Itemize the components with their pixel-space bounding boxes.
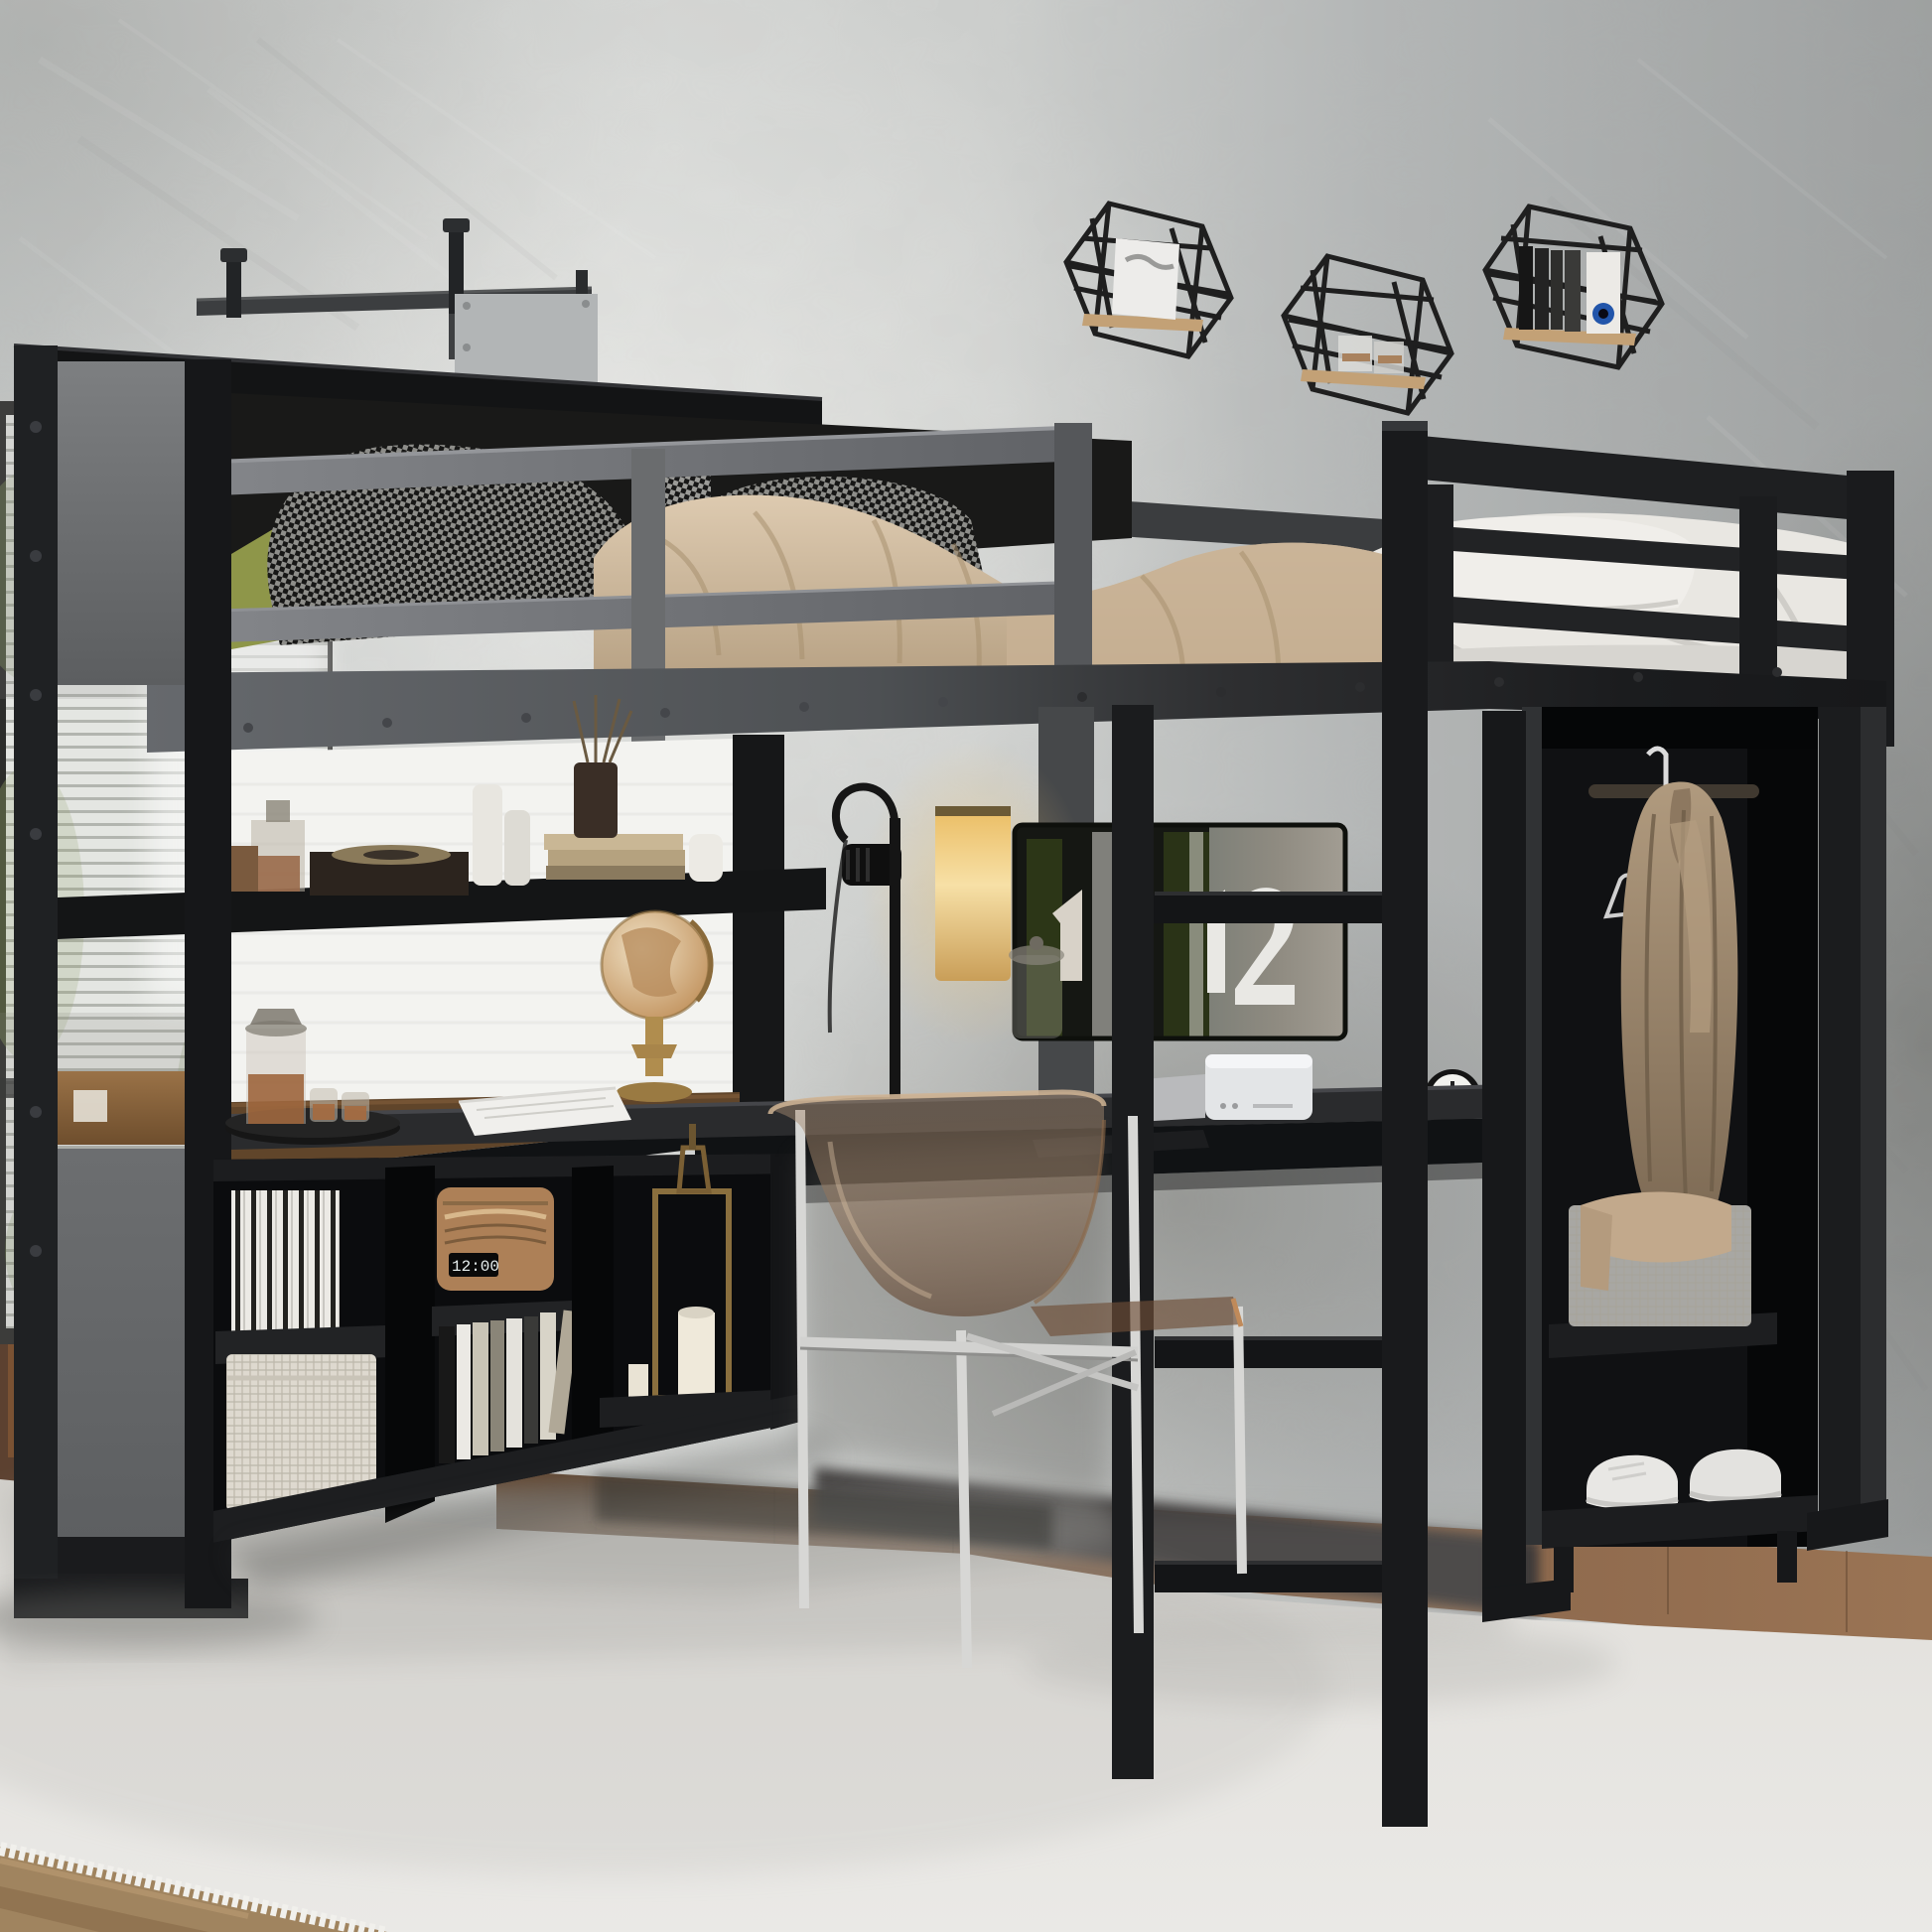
svg-text:12:00: 12:00 bbox=[452, 1258, 499, 1276]
